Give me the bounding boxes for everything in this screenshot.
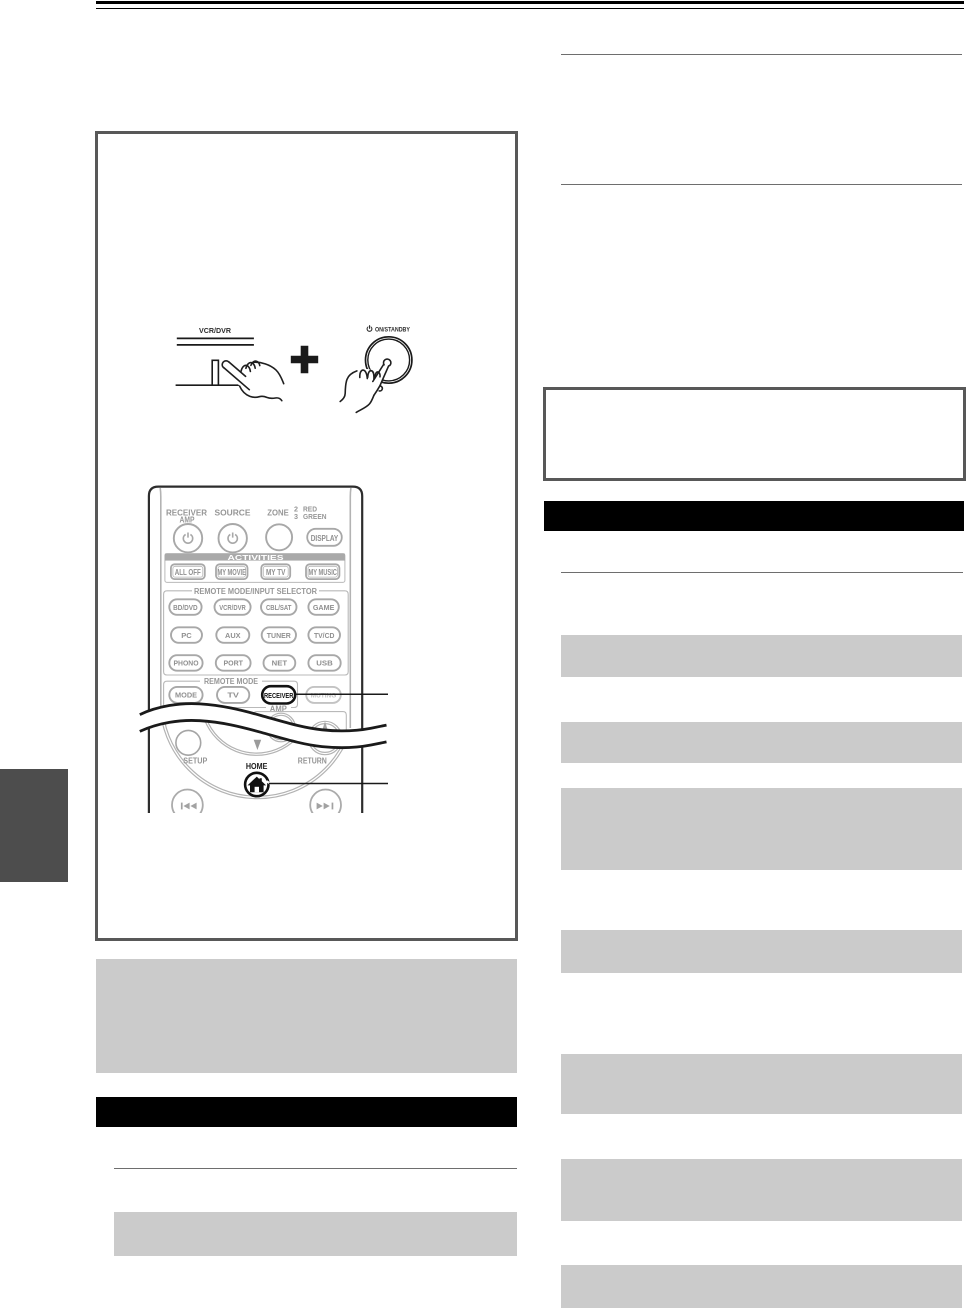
svg-text:ALL OFF: ALL OFF bbox=[175, 568, 201, 577]
svg-text:PHONO: PHONO bbox=[174, 659, 199, 668]
svg-text:CBL/SAT: CBL/SAT bbox=[266, 603, 292, 612]
svg-text:VCR/DVR: VCR/DVR bbox=[219, 603, 246, 612]
svg-text:3: 3 bbox=[294, 512, 298, 521]
svg-text:MODE: MODE bbox=[175, 691, 197, 700]
svg-text:AUX: AUX bbox=[225, 631, 241, 640]
svg-text:HOME: HOME bbox=[246, 762, 268, 771]
svg-text:TV: TV bbox=[227, 691, 240, 700]
svg-text:TV/CD: TV/CD bbox=[314, 631, 335, 640]
svg-text:MY TV: MY TV bbox=[266, 568, 286, 577]
svg-text:AMP: AMP bbox=[180, 515, 195, 524]
svg-text:PORT: PORT bbox=[223, 659, 243, 668]
svg-text:GAME: GAME bbox=[313, 603, 335, 612]
svg-text:TUNER: TUNER bbox=[267, 631, 291, 640]
svg-text:GREEN: GREEN bbox=[303, 512, 327, 521]
svg-text:MY MOVIE: MY MOVIE bbox=[217, 568, 246, 577]
svg-text:MY MUSIC: MY MUSIC bbox=[308, 568, 337, 577]
svg-text:SOURCE: SOURCE bbox=[215, 508, 252, 517]
svg-text:RECEIVER: RECEIVER bbox=[264, 691, 294, 700]
svg-text:REMOTE MODE: REMOTE MODE bbox=[204, 677, 258, 686]
svg-text:REMOTE MODE/INPUT SELECTOR: REMOTE MODE/INPUT SELECTOR bbox=[194, 587, 317, 596]
svg-text:NET: NET bbox=[272, 659, 288, 668]
svg-text:RETURN: RETURN bbox=[298, 757, 327, 766]
svg-text:ACTIVITIES: ACTIVITIES bbox=[228, 553, 284, 562]
svg-text:SETUP: SETUP bbox=[183, 757, 208, 766]
svg-text:BD/DVD: BD/DVD bbox=[173, 603, 198, 612]
svg-text:ZONE: ZONE bbox=[267, 508, 289, 517]
svg-text:ON/STANDBY: ON/STANDBY bbox=[375, 327, 411, 334]
svg-text:DISPLAY: DISPLAY bbox=[311, 534, 339, 543]
svg-text:PC: PC bbox=[181, 631, 192, 640]
svg-text:VCR/DVR: VCR/DVR bbox=[199, 326, 232, 335]
svg-text:USB: USB bbox=[316, 659, 333, 668]
